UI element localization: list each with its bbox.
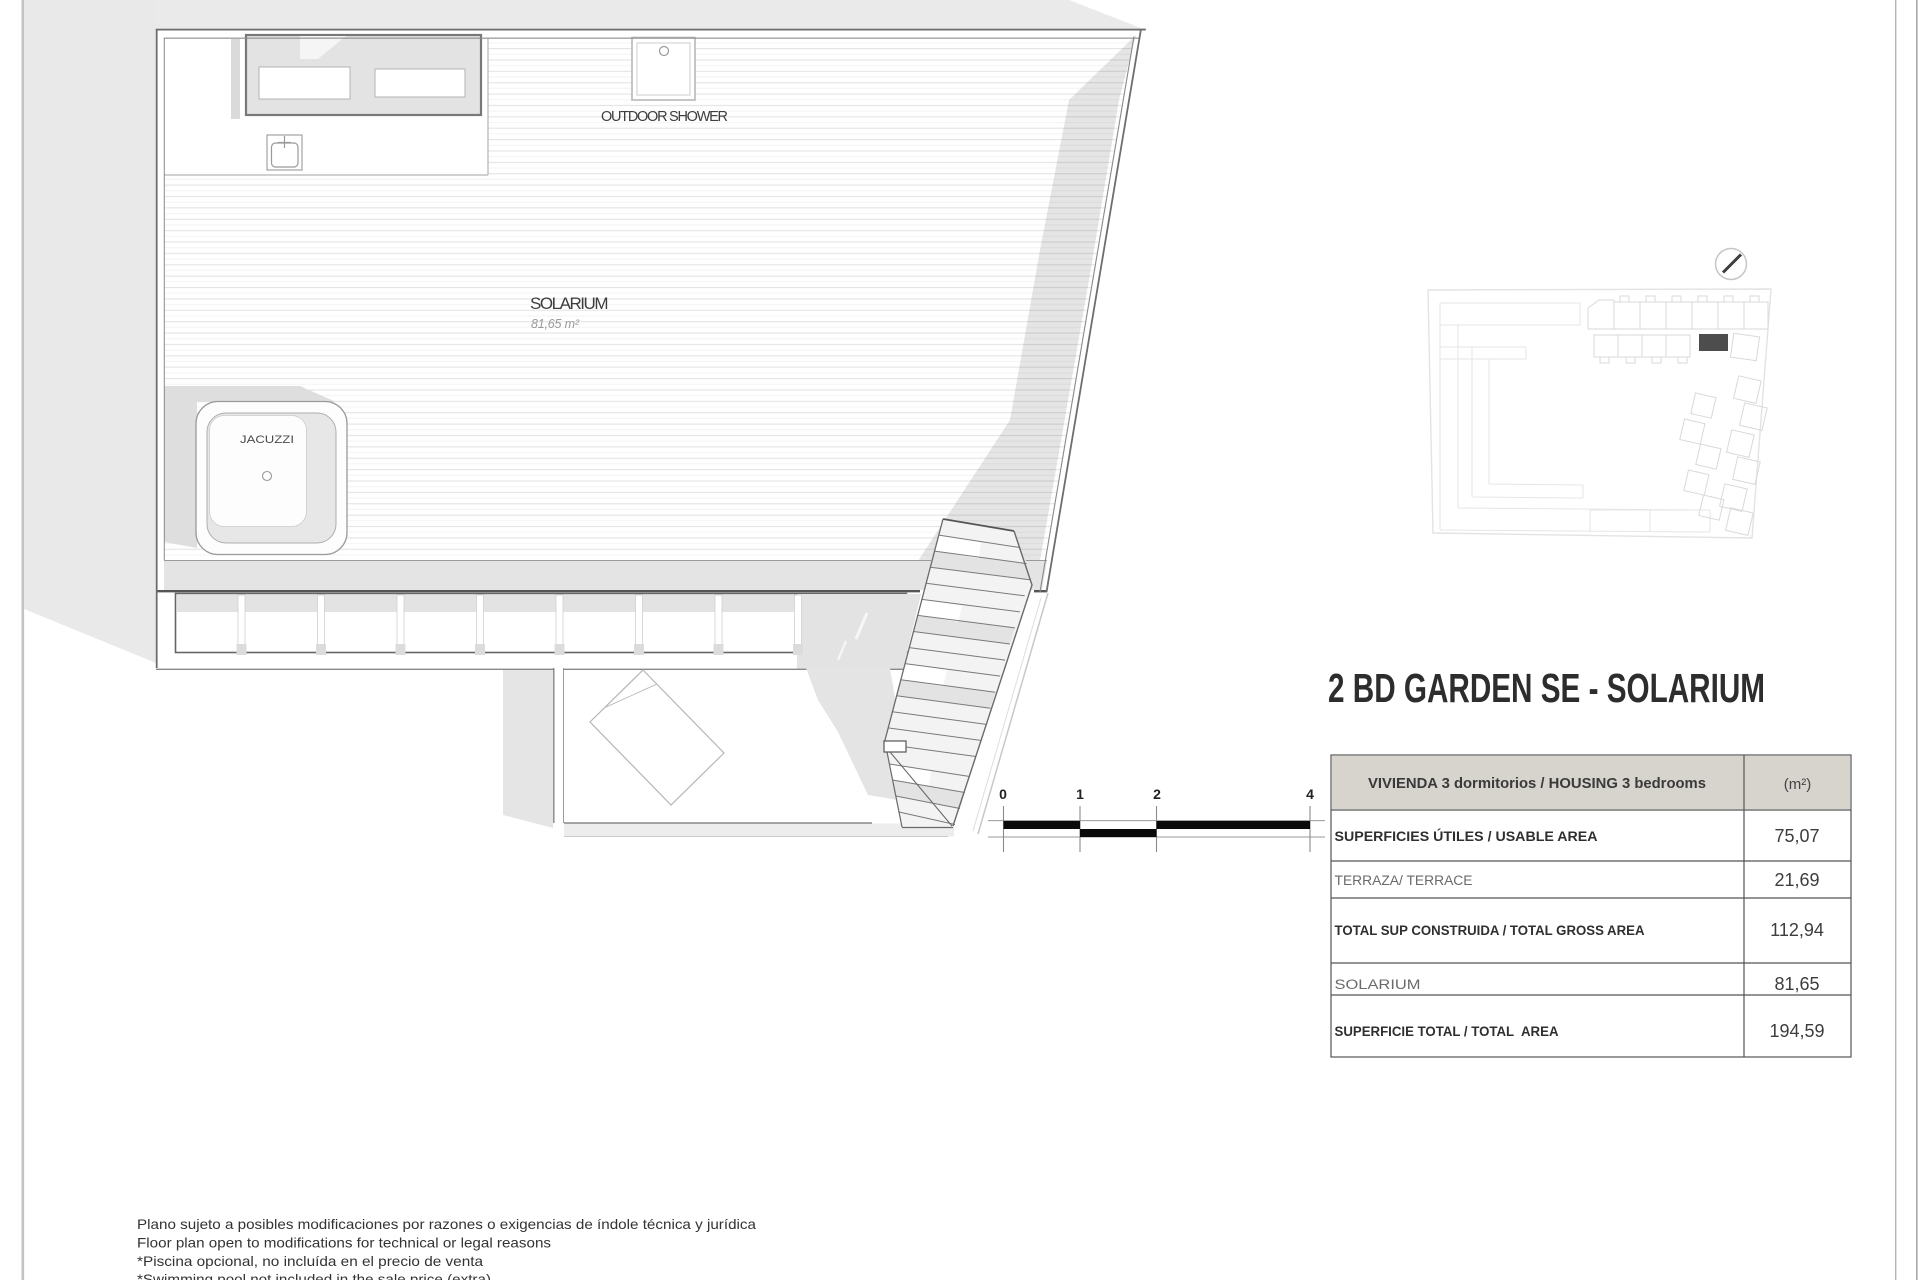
svg-text:(m²): (m²) [1784, 776, 1811, 793]
svg-text:0: 0 [999, 786, 1007, 802]
svg-text:81,65 m²: 81,65 m² [531, 317, 580, 331]
svg-text:Plano sujeto a posibles modifi: Plano sujeto a posibles modificaciones p… [137, 1216, 756, 1232]
svg-text:2: 2 [1153, 786, 1161, 802]
svg-text:4: 4 [1306, 786, 1314, 802]
svg-text:75,07: 75,07 [1774, 826, 1819, 846]
svg-text:*Swimming pool not included in: *Swimming pool not included in the sale … [137, 1271, 491, 1280]
svg-text:TOTAL SUP CONSTRUIDA / TOTAL G: TOTAL SUP CONSTRUIDA / TOTAL GROSS AREA [1335, 923, 1645, 938]
svg-text:SUPERFICIE TOTAL / TOTAL AREA: SUPERFICIE TOTAL / TOTAL AREA [1335, 1024, 1559, 1039]
svg-text:SUPERFICIES ÚTILES / USABLE AR: SUPERFICIES ÚTILES / USABLE AREA [1335, 829, 1598, 844]
svg-text:SOLARIUM: SOLARIUM [1335, 977, 1421, 992]
svg-text:21,69: 21,69 [1774, 870, 1819, 890]
svg-text:1: 1 [1076, 786, 1084, 802]
svg-text:OUTDOOR SHOWER: OUTDOOR SHOWER [601, 109, 729, 125]
svg-text:Floor plan open to modificatio: Floor plan open to modifications for tec… [137, 1235, 551, 1251]
svg-text:81,65: 81,65 [1774, 974, 1819, 994]
svg-text:SOLARIUM: SOLARIUM [530, 294, 610, 313]
svg-text:*Piscina opcional, no incluída: *Piscina opcional, no incluída en el pre… [137, 1253, 483, 1269]
svg-text:JACUZZI: JACUZZI [240, 434, 294, 446]
svg-text:2 BD GARDEN SE - SOLARIUM: 2 BD GARDEN SE - SOLARIUM [1328, 665, 1765, 711]
svg-text:194,59: 194,59 [1769, 1021, 1824, 1041]
svg-text:112,94: 112,94 [1770, 920, 1824, 940]
svg-text:TERRAZA/ TERRACE: TERRAZA/ TERRACE [1335, 873, 1473, 888]
svg-text:VIVIENDA 3 dormitorios / HOUSI: VIVIENDA 3 dormitorios / HOUSING 3 bedro… [1368, 776, 1706, 792]
